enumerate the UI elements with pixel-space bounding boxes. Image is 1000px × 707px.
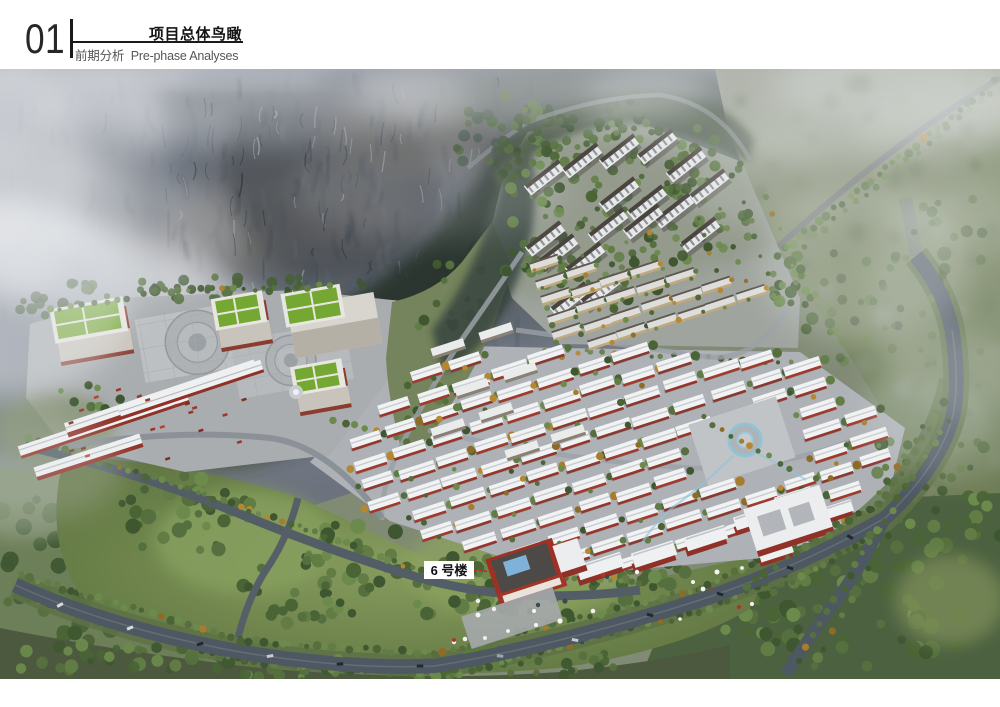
svg-text:6 号楼: 6 号楼	[431, 563, 468, 578]
